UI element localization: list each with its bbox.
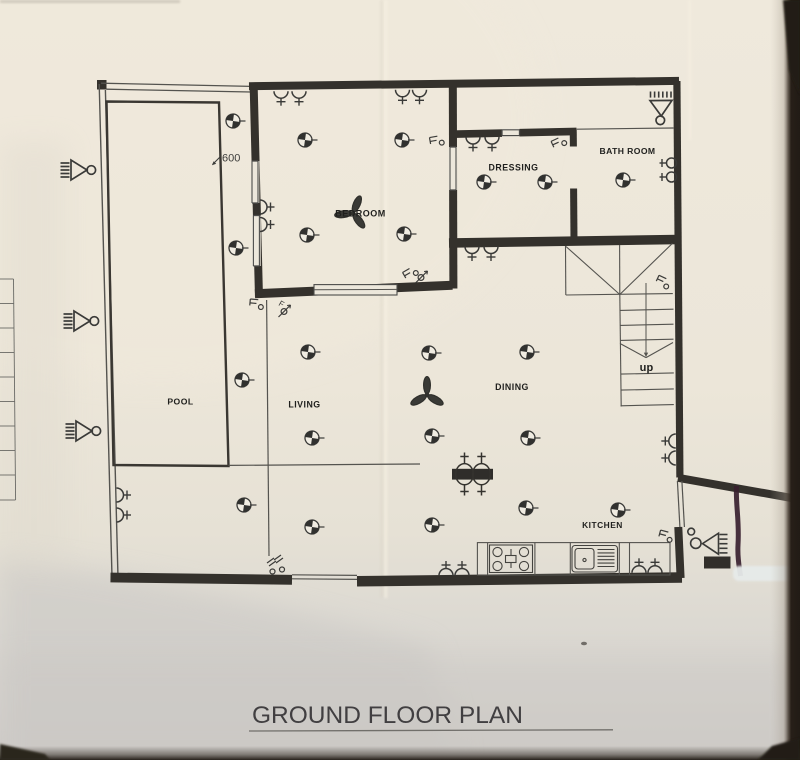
svg-text:GROUND FLOOR PLAN: GROUND FLOOR PLAN: [252, 702, 523, 729]
svg-text:BATH ROOM: BATH ROOM: [600, 146, 656, 156]
svg-text:up: up: [640, 362, 654, 374]
svg-text:LIVING: LIVING: [288, 400, 320, 410]
svg-text:DRESSING: DRESSING: [489, 163, 539, 173]
svg-text:POOL: POOL: [167, 397, 193, 407]
svg-text:600: 600: [222, 153, 240, 165]
svg-text:BEDROOM: BEDROOM: [335, 209, 386, 219]
svg-text:KITCHEN: KITCHEN: [582, 520, 623, 530]
svg-text:DINING: DINING: [495, 382, 529, 392]
